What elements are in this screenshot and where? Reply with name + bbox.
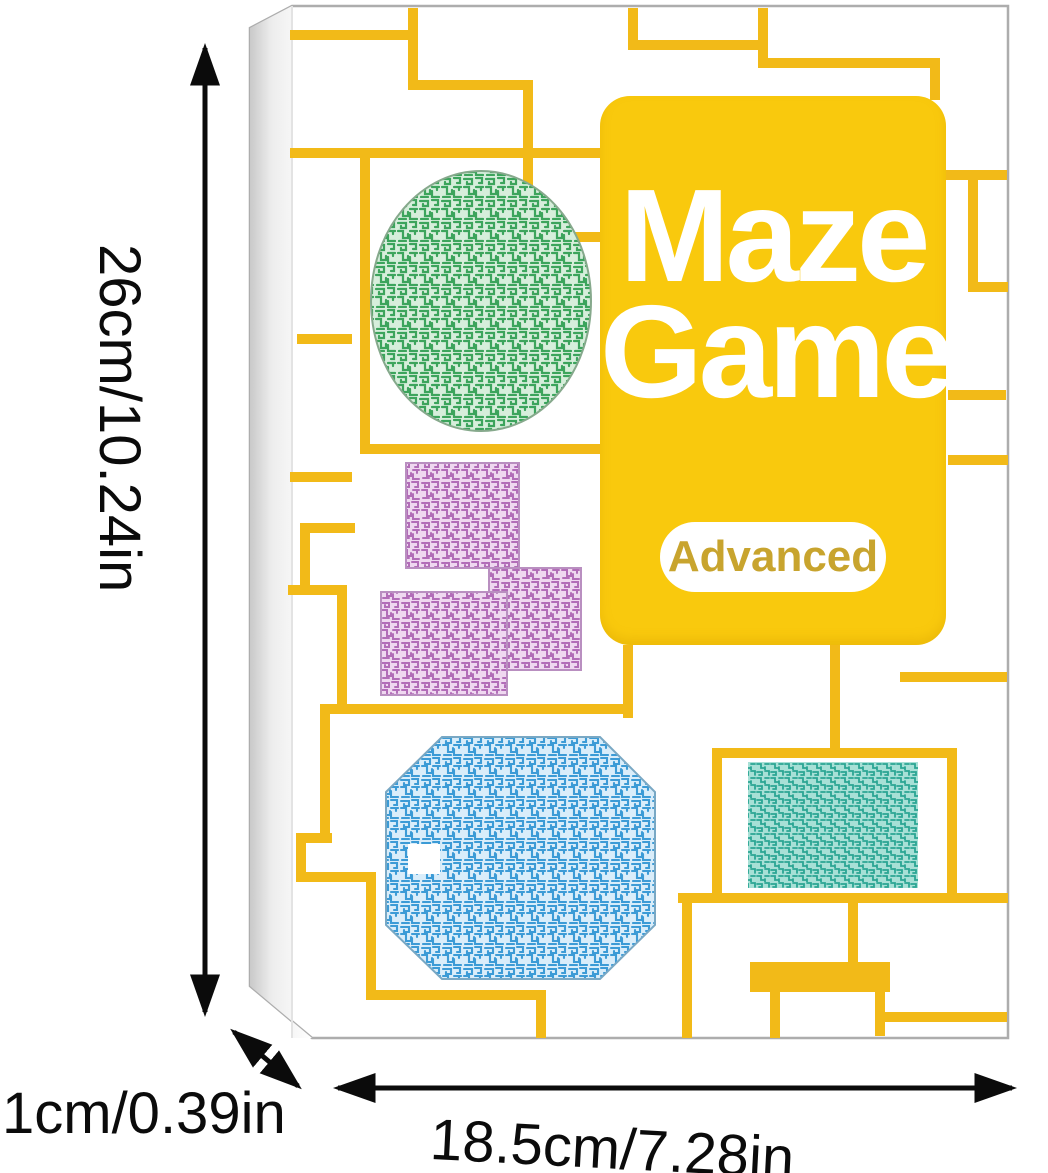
product-title-line2: Game <box>600 294 946 410</box>
product-title-line1: Maze <box>600 178 946 294</box>
maze-start-square <box>408 844 440 874</box>
blue-octagon-maze <box>386 737 655 979</box>
depth-dimension-label: 1cm/0.39in <box>2 1080 286 1147</box>
depth-arrow-icon <box>234 1032 298 1086</box>
product-dimension-image: Maze Game Advanced 26cm/10.24in 1cm/0.39… <box>0 0 1048 1173</box>
height-dimension-label: 26cm/10.24in <box>86 244 153 592</box>
teal-rectangle-maze <box>748 762 918 888</box>
title-card: Maze Game Advanced <box>600 96 946 645</box>
green-oval-maze <box>371 171 591 431</box>
product-title: Maze Game <box>600 96 946 410</box>
difficulty-badge: Advanced <box>660 522 886 592</box>
